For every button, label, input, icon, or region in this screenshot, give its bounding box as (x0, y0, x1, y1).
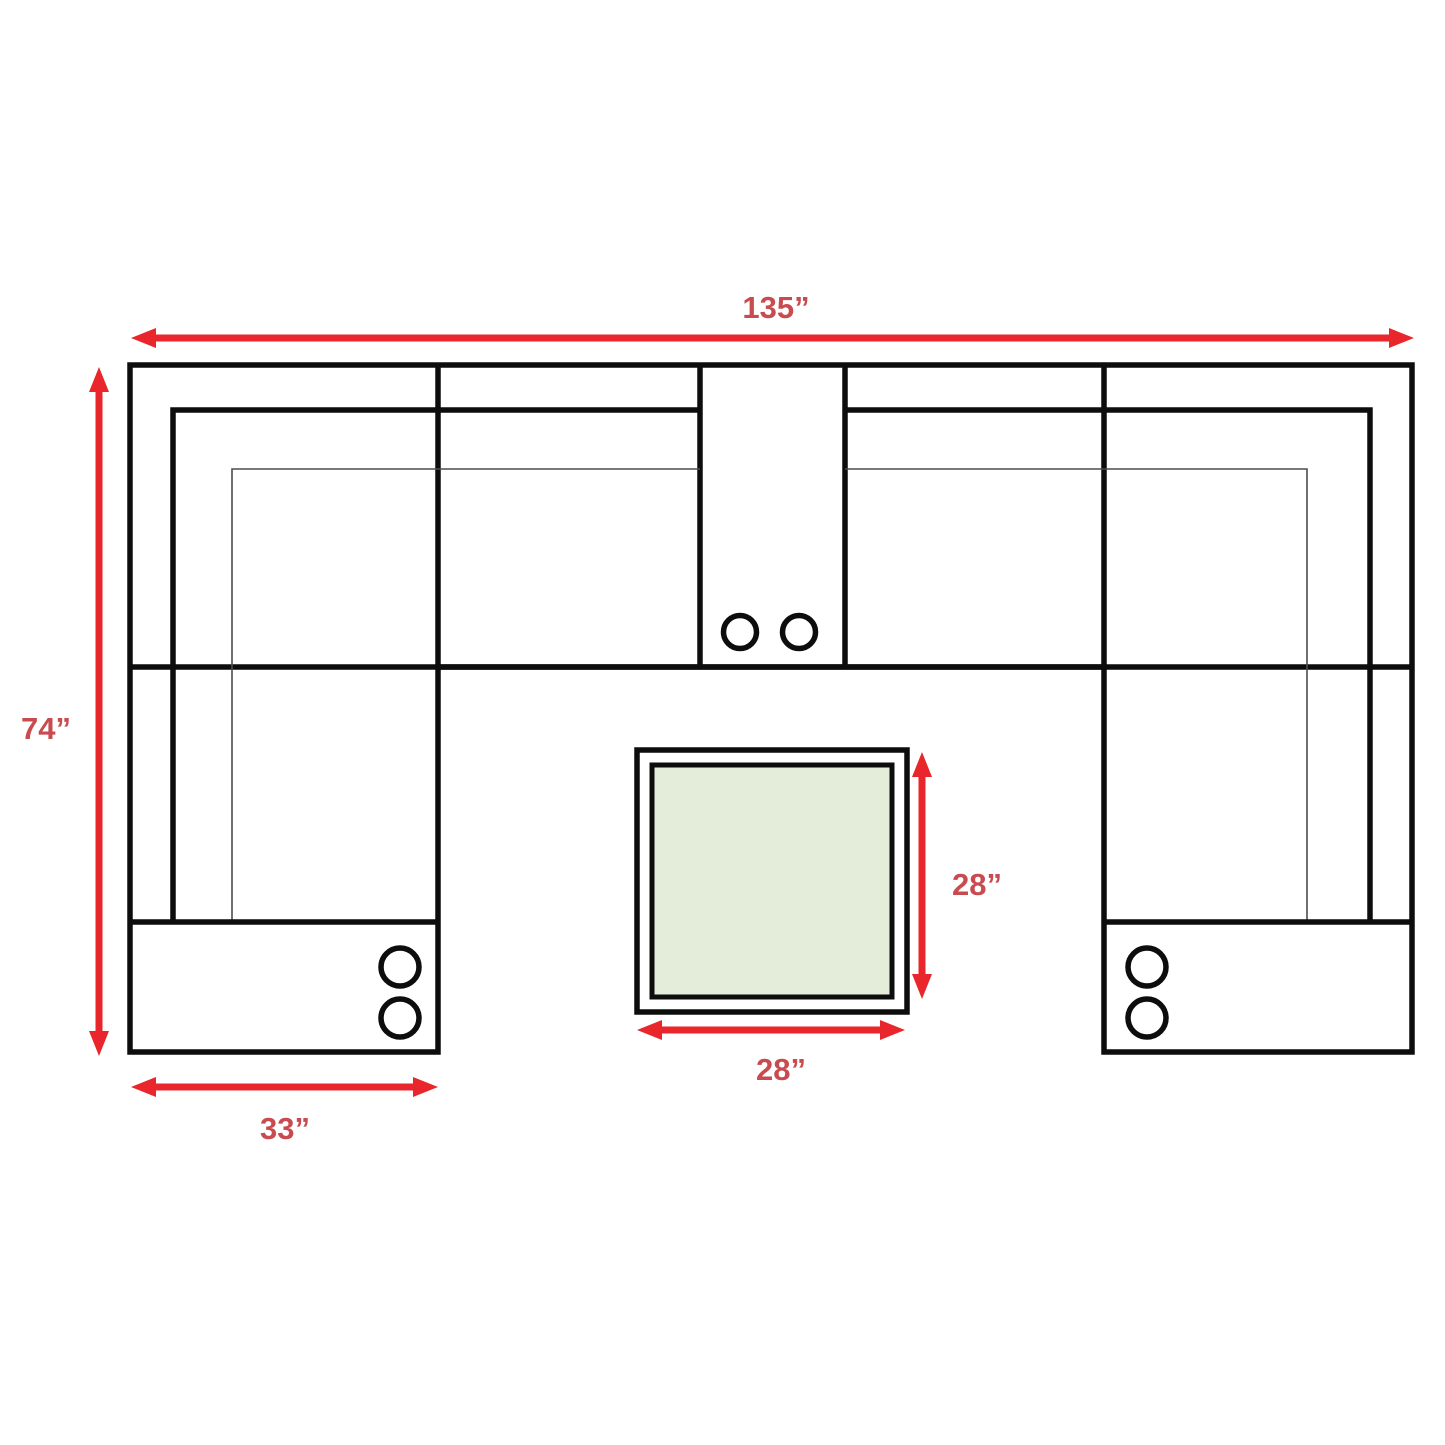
table-width-label: 28” (756, 1052, 806, 1087)
dimension-chaise-width: 33” (131, 1077, 438, 1146)
overall-width-label: 135” (742, 290, 809, 325)
cupholder-icon (724, 616, 757, 649)
arrowhead-down-icon (912, 974, 932, 999)
chaise-width-label: 33” (260, 1111, 310, 1146)
left-seat-cushion-line (232, 469, 700, 922)
recliner-button-icon (1128, 948, 1166, 986)
arrowhead-down-icon (89, 1031, 109, 1056)
overall-depth-label: 74” (21, 711, 71, 746)
dimension-table-width: 28” (637, 1020, 905, 1087)
arrowhead-up-icon (912, 752, 932, 777)
arrowhead-left-icon (131, 1077, 156, 1097)
right-seat-cushion-line (845, 469, 1307, 922)
console-cupholders (724, 616, 816, 649)
arrowhead-left-icon (637, 1020, 662, 1040)
dimension-table-depth: 28” (912, 752, 1002, 999)
left-chaise-buttons (381, 948, 419, 1037)
right-chaise-buttons (1128, 948, 1166, 1037)
recliner-button-icon (381, 999, 419, 1037)
coffee-table (637, 750, 907, 1012)
diagram-canvas: 135” 74” 33” 28” 28” (0, 0, 1445, 1445)
coffee-table-top (652, 765, 892, 997)
arrowhead-right-icon (413, 1077, 438, 1097)
table-depth-label: 28” (952, 867, 1002, 902)
arrowhead-right-icon (1389, 328, 1414, 348)
recliner-button-icon (1128, 999, 1166, 1037)
recliner-button-icon (381, 948, 419, 986)
arrowhead-up-icon (89, 367, 109, 392)
arrowhead-left-icon (131, 328, 156, 348)
sectional-sofa-dimension-diagram: 135” 74” 33” 28” 28” (0, 0, 1445, 1445)
cupholder-icon (783, 616, 816, 649)
arrowhead-right-icon (880, 1020, 905, 1040)
dimension-overall-depth: 74” (21, 367, 109, 1056)
dimension-overall-width: 135” (131, 290, 1414, 348)
